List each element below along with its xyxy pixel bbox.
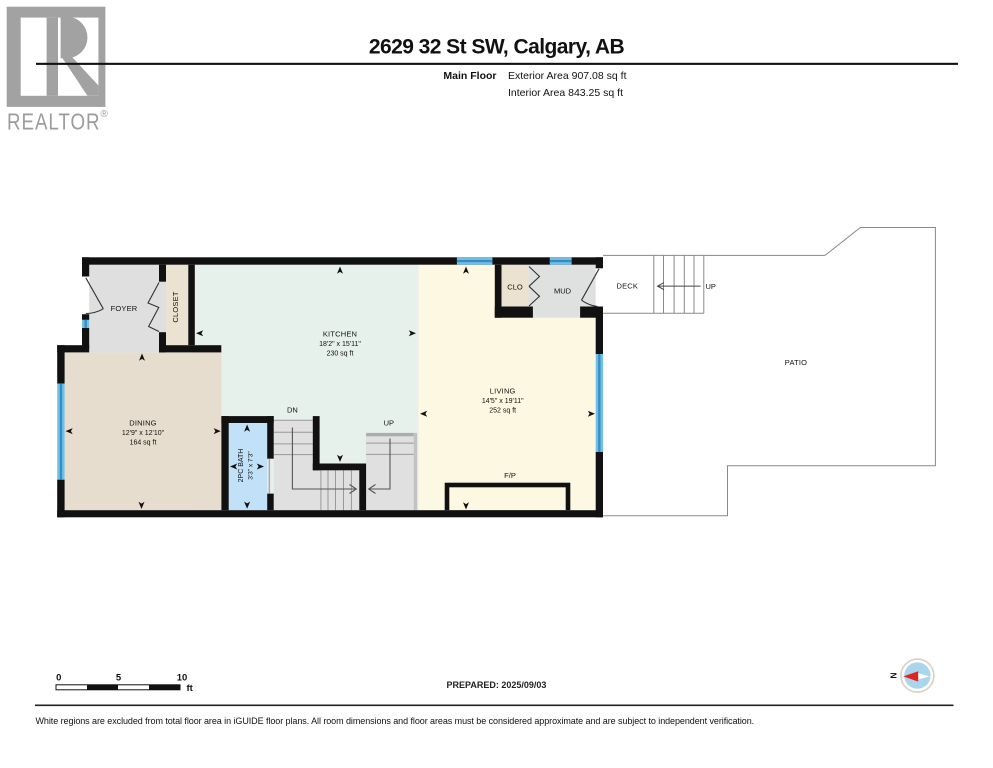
svg-text:F/P: F/P [504, 471, 516, 480]
svg-text:5: 5 [116, 673, 122, 684]
svg-text:FOYER: FOYER [111, 304, 138, 313]
svg-text:DN: DN [287, 406, 298, 415]
svg-text:252 sq ft: 252 sq ft [489, 408, 516, 415]
svg-text:10: 10 [177, 673, 188, 684]
svg-text:MUD: MUD [554, 287, 572, 296]
svg-text:REALTOR: REALTOR [7, 109, 101, 135]
svg-text:230 sq ft: 230 sq ft [327, 351, 354, 358]
svg-text:164 sq ft: 164 sq ft [130, 440, 157, 447]
svg-text:2PC BATH: 2PC BATH [238, 449, 245, 483]
svg-text:DECK: DECK [616, 282, 638, 291]
svg-text:Interior Area 843.25 sq ft: Interior Area 843.25 sq ft [508, 87, 623, 99]
svg-text:UP: UP [384, 419, 394, 428]
svg-text:0: 0 [56, 673, 61, 684]
svg-text:DINING: DINING [129, 419, 156, 428]
svg-text:18'2" x 15'11": 18'2" x 15'11" [319, 341, 361, 348]
svg-text:CLOSET: CLOSET [171, 291, 180, 322]
svg-text:LIVING: LIVING [490, 387, 516, 396]
svg-text:CLO: CLO [507, 283, 523, 292]
svg-text:12'9" x 12'10": 12'9" x 12'10" [122, 430, 165, 437]
svg-text:ft: ft [187, 683, 194, 694]
svg-text:PATIO: PATIO [785, 358, 807, 367]
svg-text:UP: UP [706, 282, 716, 291]
svg-text:N: N [889, 673, 899, 679]
svg-text:3'3" x 7'3": 3'3" x 7'3" [248, 451, 255, 480]
svg-text:Exterior Area 907.08 sq ft: Exterior Area 907.08 sq ft [508, 70, 627, 82]
svg-text:®: ® [101, 109, 109, 120]
svg-text:2629 32 St SW, Calgary, AB: 2629 32 St SW, Calgary, AB [369, 36, 625, 59]
svg-text:PREPARED: 2025/09/03: PREPARED: 2025/09/03 [447, 680, 547, 690]
svg-text:Main Floor: Main Floor [443, 70, 496, 82]
svg-text:KITCHEN: KITCHEN [323, 330, 357, 339]
svg-text:14'5" x 19'11": 14'5" x 19'11" [482, 398, 524, 405]
svg-text:White regions are excluded fro: White regions are excluded from total fl… [36, 716, 755, 726]
